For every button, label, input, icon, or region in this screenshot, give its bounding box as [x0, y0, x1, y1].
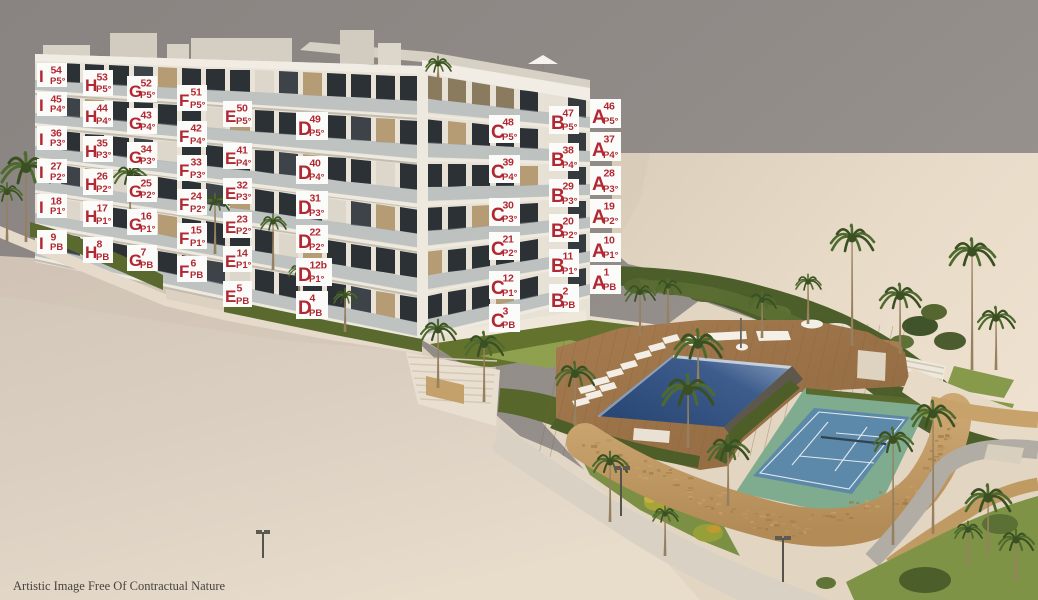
- svg-text:F: F: [179, 91, 189, 110]
- svg-text:47: 47: [563, 108, 575, 120]
- svg-text:P1°: P1°: [96, 216, 112, 227]
- svg-text:E: E: [225, 252, 236, 271]
- svg-text:P5°: P5°: [309, 128, 325, 139]
- svg-text:P2°: P2°: [502, 248, 518, 259]
- svg-text:25: 25: [141, 178, 153, 190]
- svg-text:PB: PB: [502, 320, 515, 331]
- svg-text:P4°: P4°: [236, 158, 252, 169]
- svg-text:35: 35: [97, 138, 109, 150]
- svg-text:F: F: [179, 127, 189, 146]
- svg-text:I: I: [39, 234, 44, 253]
- svg-text:51: 51: [191, 87, 203, 99]
- svg-text:23: 23: [237, 214, 249, 226]
- svg-text:10: 10: [604, 235, 616, 247]
- svg-text:P4°: P4°: [140, 122, 156, 133]
- svg-text:P1°: P1°: [236, 260, 252, 271]
- svg-text:17: 17: [97, 203, 109, 215]
- svg-text:16: 16: [141, 211, 153, 223]
- svg-text:I: I: [39, 67, 44, 86]
- svg-text:40: 40: [310, 158, 322, 170]
- svg-text:P5°: P5°: [140, 90, 156, 101]
- svg-text:P5°: P5°: [236, 116, 252, 127]
- svg-text:P1°: P1°: [603, 250, 619, 261]
- svg-text:P2°: P2°: [50, 172, 66, 183]
- svg-text:P2°: P2°: [190, 204, 206, 215]
- svg-text:P4°: P4°: [502, 172, 518, 183]
- svg-text:P3°: P3°: [190, 170, 206, 181]
- svg-text:1: 1: [604, 267, 610, 279]
- svg-text:F: F: [179, 262, 189, 281]
- svg-text:I: I: [39, 96, 44, 115]
- svg-text:42: 42: [191, 123, 203, 135]
- svg-text:50: 50: [237, 103, 249, 115]
- svg-text:P5°: P5°: [96, 84, 112, 95]
- svg-text:P1°: P1°: [50, 206, 66, 217]
- svg-text:E: E: [225, 184, 236, 203]
- svg-text:P3°: P3°: [140, 156, 156, 167]
- svg-text:37: 37: [604, 134, 616, 146]
- svg-text:P4°: P4°: [96, 116, 112, 127]
- svg-text:38: 38: [563, 145, 575, 157]
- svg-text:44: 44: [97, 103, 109, 115]
- svg-text:4: 4: [310, 293, 316, 305]
- svg-text:3: 3: [503, 306, 509, 318]
- svg-text:P1°: P1°: [502, 288, 518, 299]
- svg-text:34: 34: [141, 144, 153, 156]
- svg-text:43: 43: [141, 110, 153, 122]
- svg-text:54: 54: [51, 65, 63, 77]
- svg-text:19: 19: [604, 201, 616, 213]
- svg-text:41: 41: [237, 145, 249, 157]
- svg-text:P3°: P3°: [236, 192, 252, 203]
- svg-text:PB: PB: [50, 242, 63, 253]
- svg-text:PB: PB: [190, 270, 203, 281]
- svg-text:P1°: P1°: [562, 266, 578, 277]
- svg-text:P4°: P4°: [562, 160, 578, 171]
- svg-text:P4°: P4°: [603, 150, 619, 161]
- svg-text:P5°: P5°: [562, 122, 578, 133]
- svg-text:24: 24: [191, 191, 203, 203]
- svg-text:29: 29: [563, 181, 575, 193]
- svg-text:15: 15: [191, 225, 203, 237]
- svg-text:PB: PB: [96, 252, 109, 263]
- svg-text:P4°: P4°: [309, 172, 325, 183]
- svg-text:2: 2: [563, 286, 569, 298]
- svg-text:F: F: [179, 229, 189, 248]
- svg-text:P3°: P3°: [50, 138, 66, 149]
- svg-text:E: E: [225, 107, 236, 126]
- svg-text:P2°: P2°: [309, 242, 325, 253]
- svg-text:48: 48: [503, 117, 515, 129]
- svg-text:P1°: P1°: [190, 238, 206, 249]
- svg-text:20: 20: [563, 216, 575, 228]
- svg-text:P2°: P2°: [96, 184, 112, 195]
- svg-text:PB: PB: [309, 308, 322, 319]
- svg-text:E: E: [225, 218, 236, 237]
- svg-text:11: 11: [563, 251, 574, 263]
- svg-text:F: F: [179, 161, 189, 180]
- svg-text:I: I: [39, 163, 44, 182]
- svg-text:8: 8: [97, 239, 103, 251]
- svg-text:P3°: P3°: [603, 184, 619, 195]
- svg-text:PB: PB: [603, 282, 616, 293]
- svg-text:46: 46: [604, 101, 616, 113]
- svg-text:30: 30: [503, 200, 515, 212]
- svg-text:33: 33: [191, 157, 203, 169]
- svg-text:7: 7: [141, 247, 147, 259]
- svg-text:P4°: P4°: [50, 104, 66, 115]
- svg-text:21: 21: [503, 234, 515, 246]
- svg-text:F: F: [179, 195, 189, 214]
- svg-text:39: 39: [503, 157, 515, 169]
- svg-text:12b: 12b: [310, 260, 327, 272]
- svg-text:31: 31: [310, 193, 322, 205]
- svg-text:E: E: [225, 287, 236, 306]
- svg-text:PB: PB: [562, 300, 575, 311]
- svg-text:P3°: P3°: [562, 196, 578, 207]
- svg-text:49: 49: [310, 114, 322, 126]
- svg-text:52: 52: [141, 78, 153, 90]
- svg-text:P2°: P2°: [140, 190, 156, 201]
- svg-text:5: 5: [237, 283, 243, 295]
- svg-text:P2°: P2°: [562, 230, 578, 241]
- svg-text:26: 26: [97, 171, 109, 183]
- svg-text:P4°: P4°: [190, 136, 206, 147]
- svg-text:PB: PB: [236, 296, 249, 307]
- svg-text:P5°: P5°: [502, 132, 518, 143]
- svg-text:27: 27: [51, 161, 63, 173]
- svg-text:22: 22: [310, 227, 322, 239]
- svg-text:PB: PB: [140, 260, 153, 271]
- svg-text:P3°: P3°: [309, 208, 325, 219]
- svg-text:32: 32: [237, 180, 249, 192]
- svg-text:I: I: [39, 198, 44, 217]
- svg-text:P1°: P1°: [309, 274, 325, 285]
- svg-text:P1°: P1°: [140, 224, 156, 235]
- svg-text:P5°: P5°: [190, 100, 206, 111]
- svg-text:P3°: P3°: [502, 214, 518, 225]
- svg-text:I: I: [39, 130, 44, 149]
- svg-text:P5°: P5°: [603, 116, 619, 127]
- svg-text:53: 53: [97, 72, 109, 84]
- svg-text:6: 6: [191, 258, 197, 270]
- svg-text:E: E: [225, 149, 236, 168]
- svg-text:P2°: P2°: [603, 216, 619, 227]
- svg-text:Artistic Image Free Of Contrac: Artistic Image Free Of Contractual Natur…: [13, 579, 226, 593]
- svg-text:28: 28: [604, 168, 616, 180]
- svg-text:P5°: P5°: [50, 76, 66, 87]
- svg-text:14: 14: [237, 248, 249, 260]
- svg-text:P3°: P3°: [96, 150, 112, 161]
- svg-text:P2°: P2°: [236, 226, 252, 237]
- svg-text:12: 12: [503, 273, 515, 285]
